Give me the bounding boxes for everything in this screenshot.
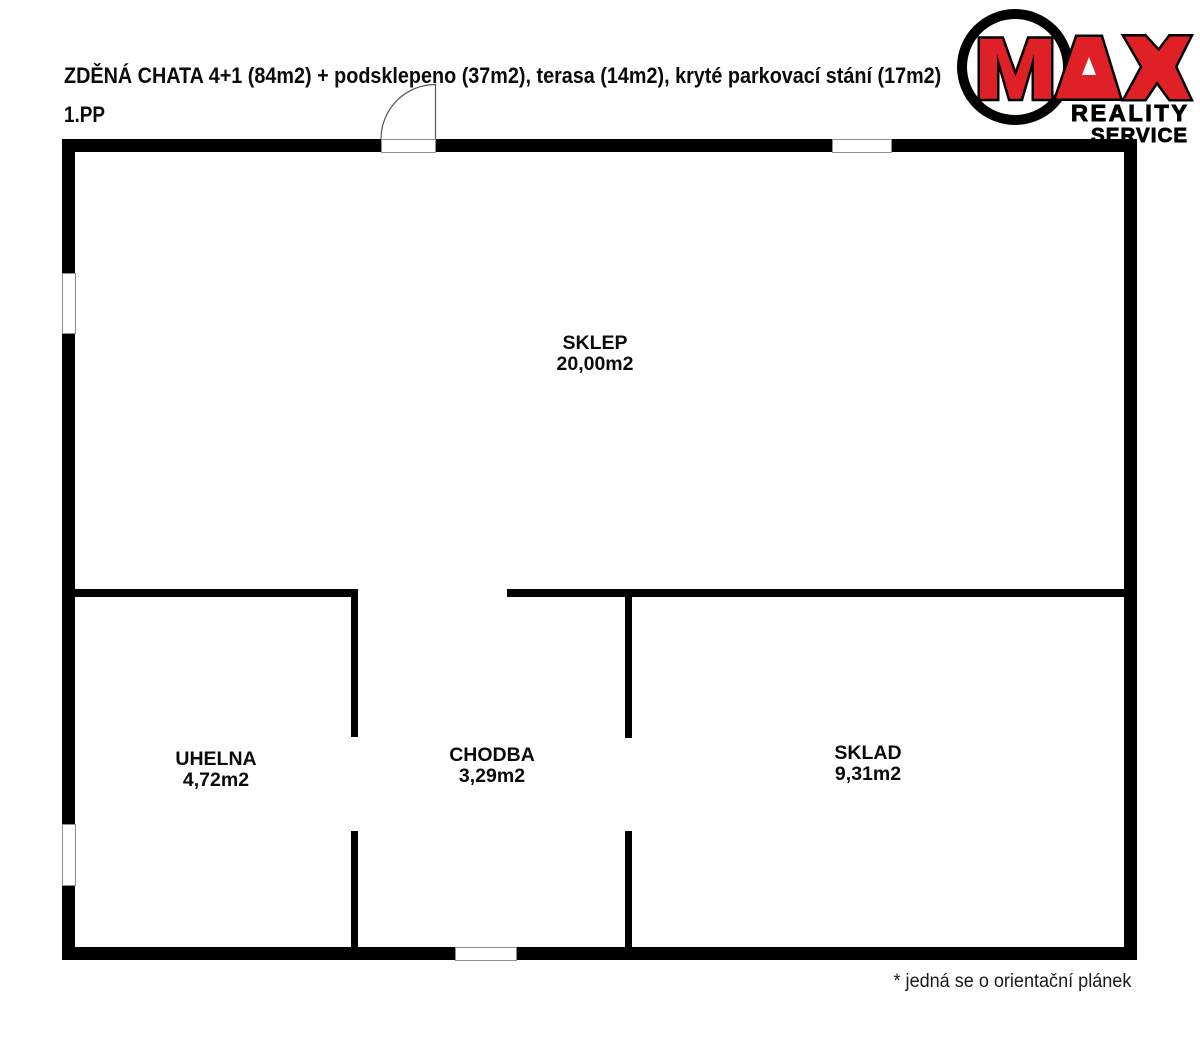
svg-text:REALITY: REALITY (1071, 100, 1187, 126)
